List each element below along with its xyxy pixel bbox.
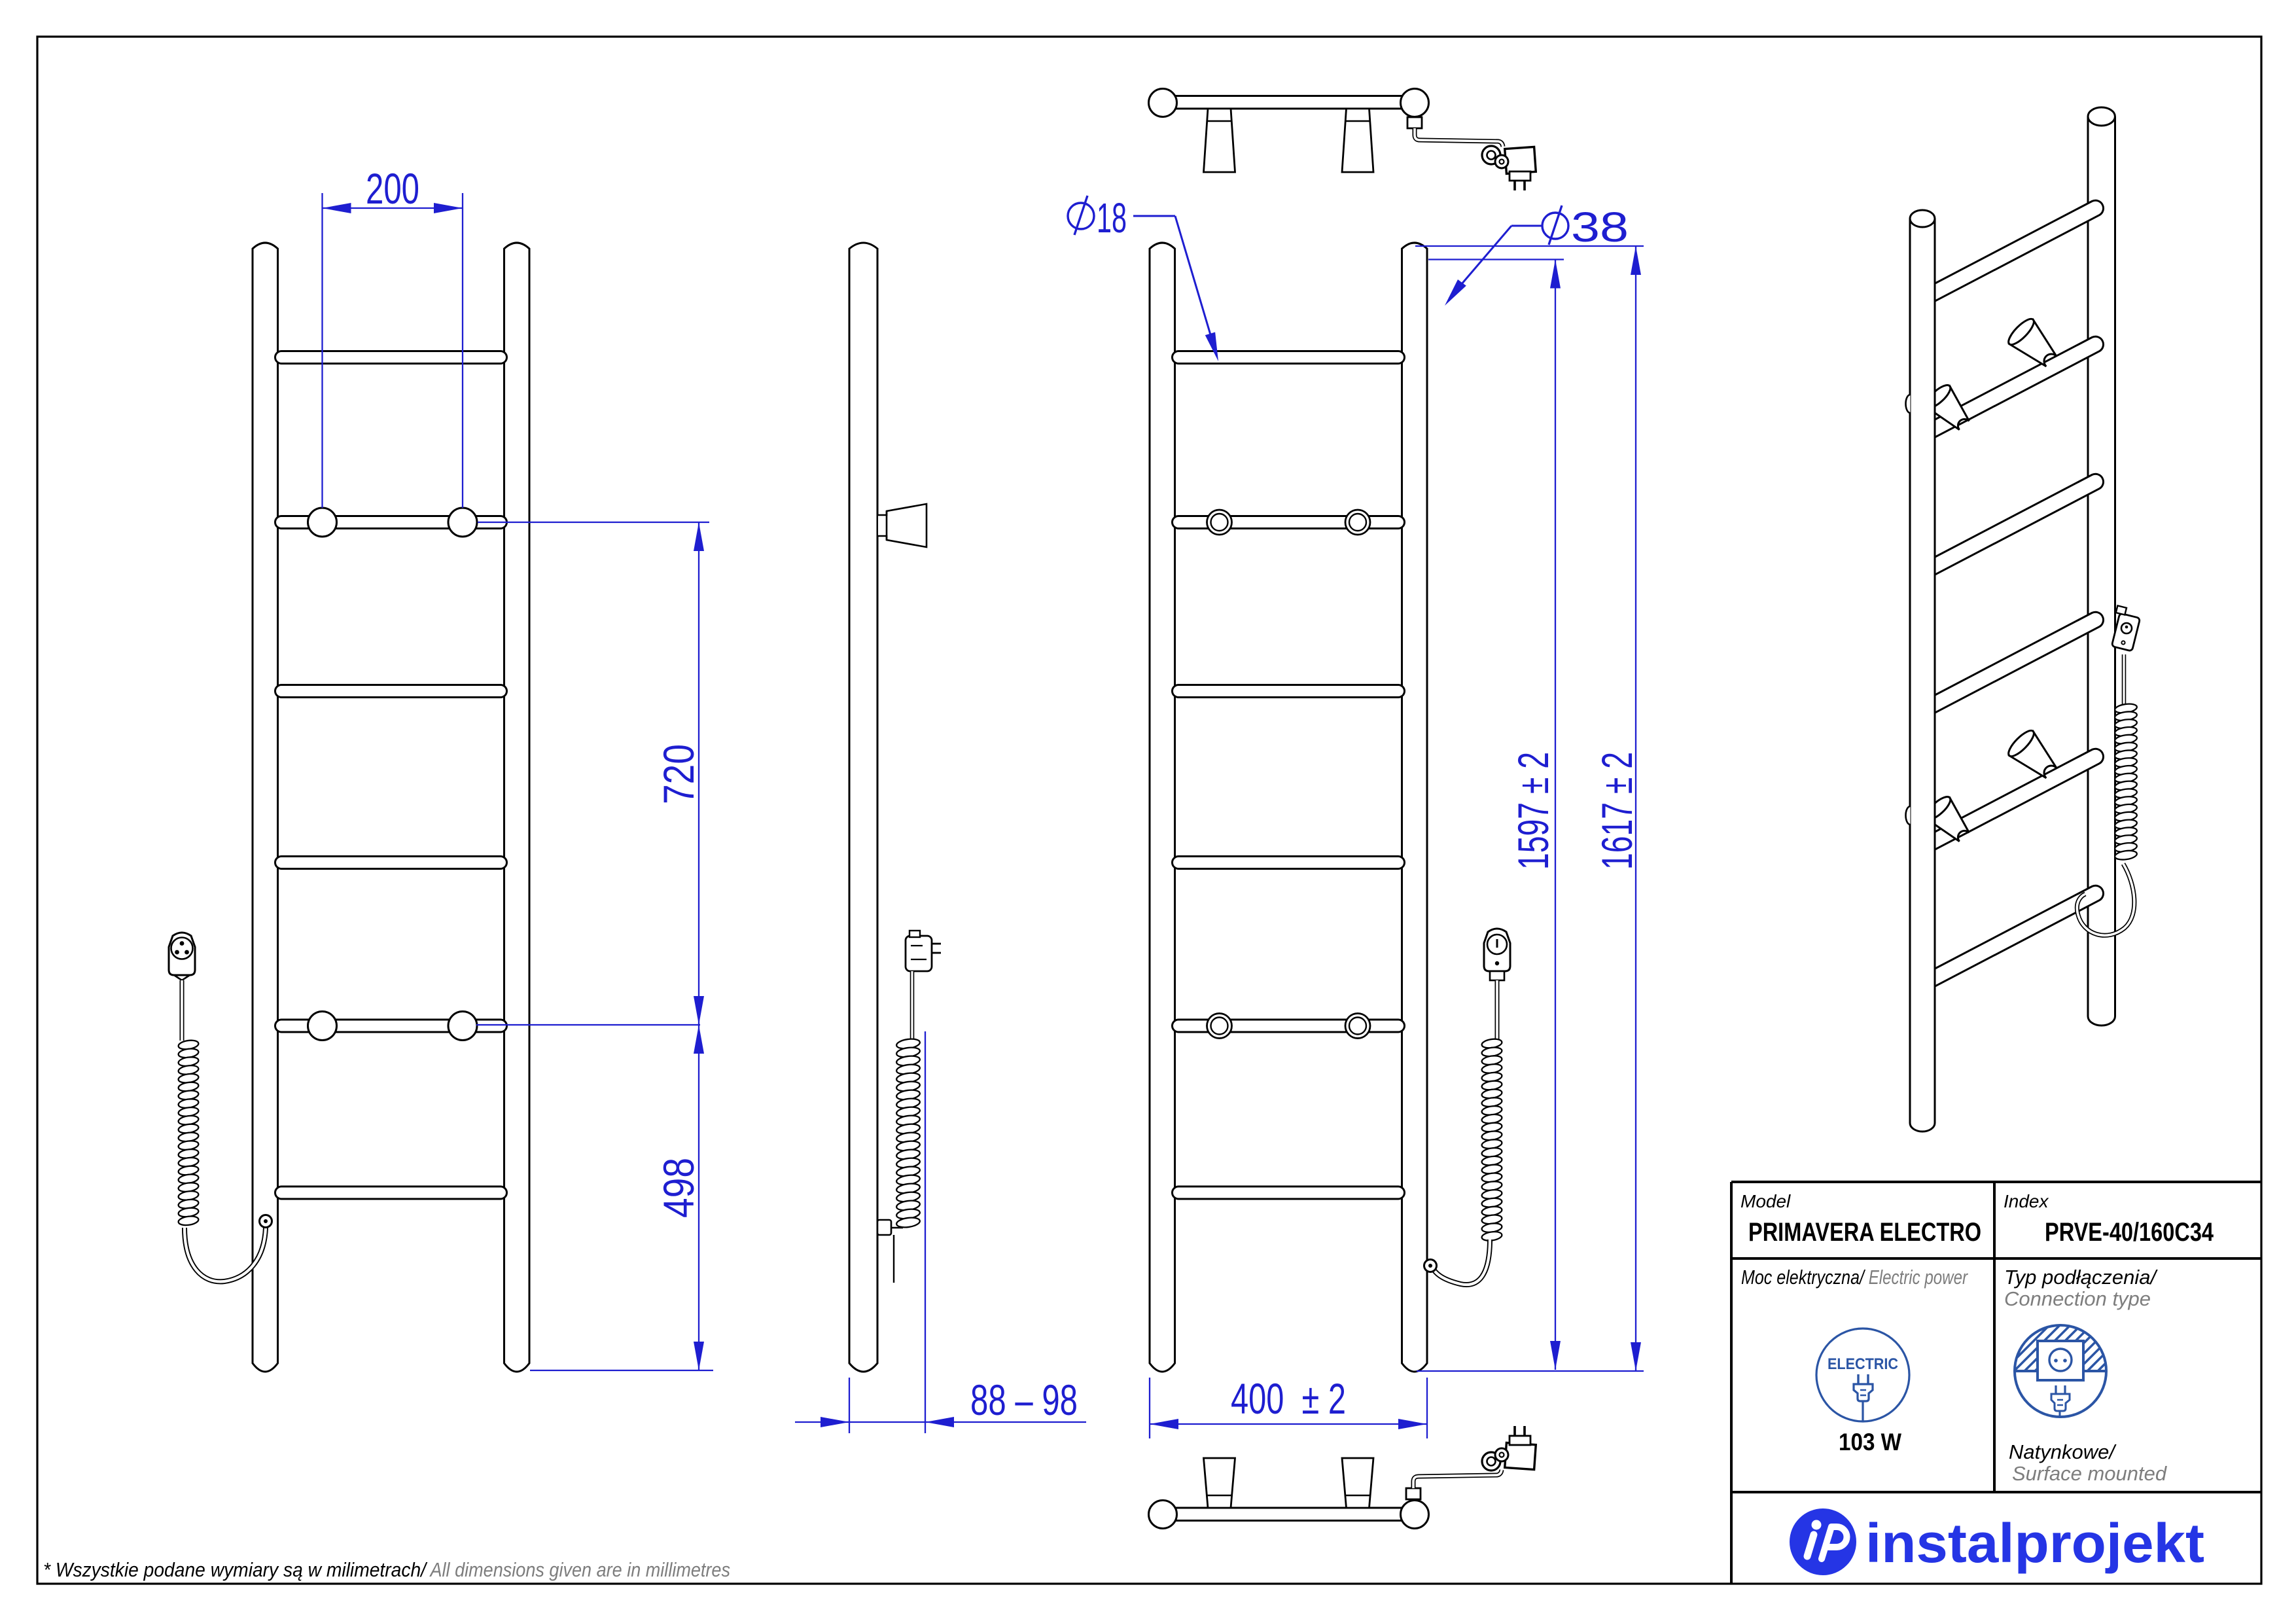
svg-text:498: 498 bbox=[654, 1158, 703, 1218]
svg-text:103 W: 103 W bbox=[1839, 1429, 1901, 1455]
svg-text:Connection type: Connection type bbox=[2004, 1287, 2151, 1310]
svg-text:* Wszystkie podane wymiary są: * Wszystkie podane wymiary są w milimetr… bbox=[43, 1558, 730, 1581]
svg-text:Index: Index bbox=[2004, 1191, 2049, 1211]
svg-text:PRIMAVERA ELECTRO: PRIMAVERA ELECTRO bbox=[1748, 1218, 1981, 1247]
svg-text:1617 ± 2: 1617 ± 2 bbox=[1593, 752, 1641, 870]
svg-text:200: 200 bbox=[366, 164, 419, 213]
svg-text:38: 38 bbox=[1571, 204, 1629, 251]
svg-text:PRVE-40/160C34: PRVE-40/160C34 bbox=[2045, 1218, 2214, 1247]
svg-text:720: 720 bbox=[654, 744, 703, 804]
svg-text:ELECTRIC: ELECTRIC bbox=[1828, 1355, 1898, 1373]
svg-text:18: 18 bbox=[1097, 194, 1127, 241]
svg-text:Surface mounted: Surface mounted bbox=[2012, 1462, 2168, 1485]
svg-text:88 – 98: 88 – 98 bbox=[970, 1376, 1078, 1424]
svg-text:Typ podłączenia/: Typ podłączenia/ bbox=[2004, 1266, 2158, 1289]
svg-text:Model: Model bbox=[1740, 1191, 1791, 1211]
svg-text:1597 ± 2: 1597 ± 2 bbox=[1509, 752, 1557, 870]
svg-text:Moc elektryczna/ Electric powe: Moc elektryczna/ Electric power bbox=[1741, 1266, 1968, 1289]
svg-text:400 ± 2: 400 ± 2 bbox=[1231, 1374, 1346, 1423]
svg-text:Natynkowe/: Natynkowe/ bbox=[2009, 1440, 2117, 1463]
svg-text:instalprojekt: instalprojekt bbox=[1865, 1512, 2204, 1574]
